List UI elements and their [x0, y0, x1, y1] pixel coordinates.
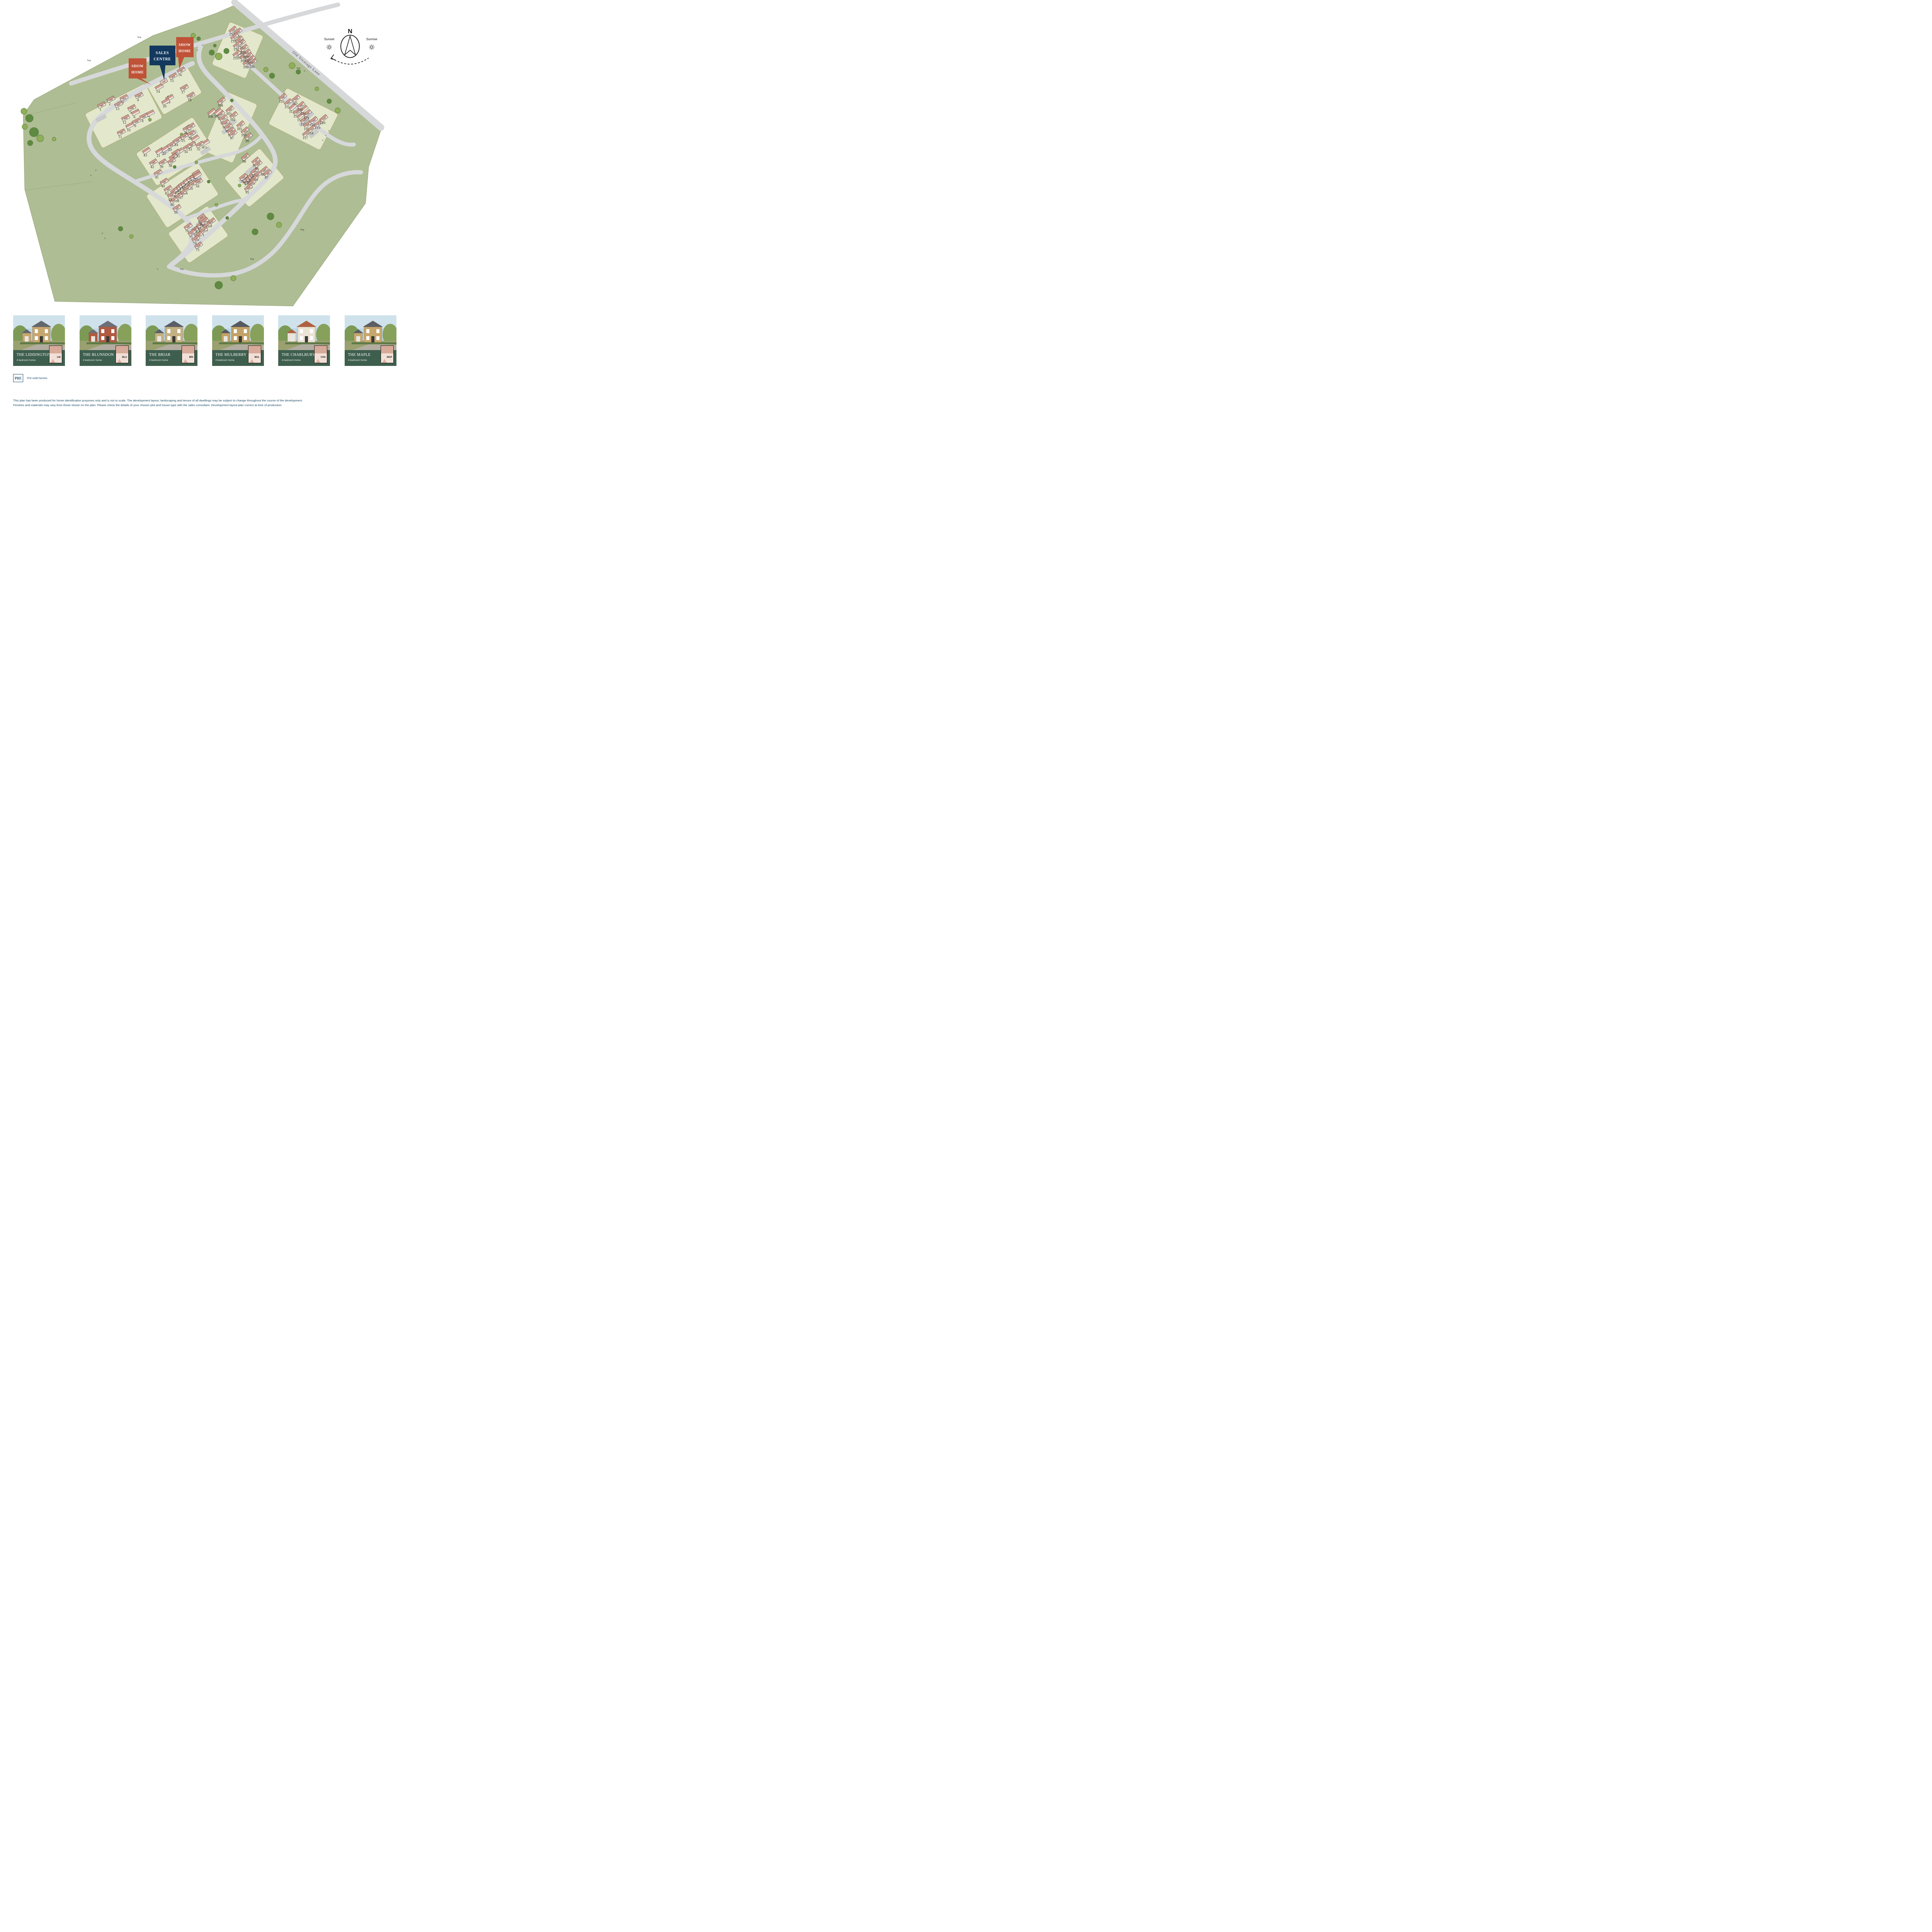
- plot-number: 118: [308, 132, 313, 136]
- plot-number: 20: [163, 105, 167, 109]
- plot-number: 60: [170, 203, 174, 207]
- svg-text:HOME: HOME: [179, 49, 191, 53]
- plot-number: 24: [174, 143, 178, 147]
- house-photo: [212, 315, 264, 350]
- plot-number: 101: [237, 128, 243, 131]
- plot-number: 6: [134, 116, 136, 119]
- plot-number: 34: [184, 150, 188, 154]
- house-type-card-maple[interactable]: THE MAPLE 4 bedroom home MAP: [345, 315, 396, 366]
- visitor-parking-label: V: [90, 175, 92, 177]
- plot-number: 13: [116, 107, 119, 111]
- plot-number: 74: [193, 242, 197, 246]
- plot-number: 59: [174, 211, 178, 215]
- plot-number: 21: [156, 154, 160, 158]
- plot-number: 12: [122, 121, 126, 125]
- plot-number: 43: [143, 154, 147, 158]
- plot-number: 73: [196, 248, 199, 252]
- svg-text:HOME: HOME: [131, 71, 144, 75]
- visitor-parking-label: V: [95, 170, 97, 172]
- plot-number: 99: [245, 139, 249, 143]
- svg-text:CENTRE: CENTRE: [154, 57, 171, 61]
- visitor-parking-label: V: [197, 49, 199, 52]
- visitor-parking-label: V: [325, 135, 327, 137]
- plot-number: 110: [279, 100, 284, 104]
- sun-path-arrow-icon: [331, 54, 335, 60]
- visitor-parking-label: V: [157, 269, 159, 271]
- visitor-parking-label: V: [328, 130, 330, 133]
- disclaimer-line-2: Finishes and materials may vary from tho…: [13, 403, 406, 408]
- house-photo: [278, 315, 330, 350]
- plot-number: 9: [134, 124, 136, 128]
- plot-number: 4: [137, 99, 139, 102]
- visitor-parking-label: V: [322, 139, 324, 142]
- house-type-cards: THE LIDDINGTON 4 bedroom home LID THE BL…: [13, 315, 396, 366]
- plot-number: 41: [155, 176, 159, 180]
- plot-number: 120: [320, 121, 326, 125]
- visitor-parking-label: V: [202, 44, 204, 47]
- house-type-card-liddington[interactable]: THE LIDDINGTON 4 bedroom home LID: [13, 315, 65, 366]
- house-photo: [345, 315, 396, 350]
- plot-number: 103: [226, 112, 232, 116]
- development-site-plan-page: BRI1PRE2MUL3MAP4PRE567PRE8PRE910BRI11PRE…: [0, 0, 419, 419]
- floorplan-icon: CHA: [314, 345, 327, 363]
- plot-number: 105: [214, 115, 220, 119]
- house-type-card-charlbury[interactable]: THE CHARLBURY 4 bedroom home CHA: [278, 315, 330, 366]
- plot-number: 18: [188, 99, 192, 102]
- plot-number: 125: [292, 102, 298, 105]
- plot-number: 129: [243, 56, 249, 60]
- svg-text:N: N: [348, 28, 352, 35]
- plot-number: 100: [241, 134, 247, 138]
- plot-number: 42: [150, 165, 154, 169]
- plot-number: 10: [127, 129, 131, 133]
- plot-number: 109: [243, 66, 249, 70]
- plot-number: 30/31: [201, 146, 207, 149]
- house-photo: [13, 315, 65, 350]
- plot-number: 23: [168, 148, 172, 152]
- disclaimer-text: This plan has been produced for home ide…: [13, 398, 406, 408]
- plot-number: 16: [178, 73, 182, 77]
- plot-number: 123: [300, 112, 306, 116]
- plot-number: 111: [284, 105, 290, 109]
- plot-number: 122: [304, 116, 310, 120]
- sunrise-sun-icon: [369, 44, 374, 50]
- plot-number: 40: [161, 185, 165, 189]
- plot-number: 91: [245, 191, 249, 195]
- plot-number: 128: [245, 59, 251, 63]
- plot-number: 117: [303, 136, 308, 140]
- pre-legend-label: Pre-sold homes: [27, 376, 48, 380]
- bcp-label: bcp: [180, 268, 184, 270]
- plot-number: 7: [148, 116, 150, 120]
- pre-code-box: PRE: [13, 374, 23, 382]
- compass: N Sunset Sunrise: [324, 28, 378, 64]
- plot-number: 119: [315, 126, 320, 130]
- pre-sold-legend: PRE Pre-sold homes: [13, 374, 48, 382]
- plot-number: 17: [181, 91, 185, 95]
- house-type-card-mulberry[interactable]: THE MULBERRY 4 bedroom home MUL: [212, 315, 264, 366]
- plot-number: 79: [240, 180, 244, 184]
- house-photo: [146, 315, 197, 350]
- plot-number: 8: [142, 119, 144, 123]
- plot-number: 14: [156, 90, 160, 94]
- plot-number: 25: [181, 139, 185, 143]
- plot-number: 102: [230, 118, 236, 122]
- plot-number: 2: [109, 102, 111, 106]
- plot-number: 54: [196, 185, 199, 189]
- plot-number: 76: [185, 230, 189, 233]
- floorplan-icon: LID: [49, 345, 62, 363]
- disclaimer-line-1: This plan has been produced for home ide…: [13, 398, 406, 403]
- bcp-label: bcp: [87, 59, 91, 62]
- house-type-card-blunsdon[interactable]: THE BLUNSDON 4 bedroom home BLU: [80, 315, 131, 366]
- floorplan-icon: MAP: [381, 345, 394, 363]
- svg-text:SHOW: SHOW: [131, 65, 144, 68]
- plot-number: 22: [162, 152, 166, 156]
- svg-text:SHOW: SHOW: [179, 43, 191, 47]
- bcp-label: bcp: [250, 258, 254, 260]
- house-photo: [80, 315, 131, 350]
- sunset-sun-icon: [327, 44, 332, 50]
- bcp-label: bcp: [297, 67, 300, 70]
- floorplan-icon: MUL: [248, 345, 261, 363]
- plot-number: 87: [265, 176, 269, 180]
- site-map: BRI1PRE2MUL3MAP4PRE567PRE8PRE910BRI11PRE…: [0, 0, 419, 309]
- plot-number: 130: [240, 51, 246, 55]
- plot-number: 106: [208, 115, 214, 119]
- plot-number: 11: [118, 135, 122, 139]
- plot-number: 33: [188, 148, 192, 152]
- plot-number: 61: [168, 198, 172, 202]
- plot-number: 5: [130, 111, 132, 115]
- plot-number: 135: [231, 40, 236, 44]
- visitor-parking-label: V: [104, 238, 106, 240]
- svg-text:Sunset: Sunset: [324, 37, 335, 41]
- plot-number: 104: [218, 104, 223, 108]
- bcp-label: bcp: [138, 36, 141, 39]
- floorplan-icon: BLU: [116, 345, 129, 363]
- visitor-parking-label: V: [102, 233, 104, 235]
- plot-number: 121: [310, 123, 316, 127]
- bcp-label: bcp: [301, 228, 304, 231]
- plot-number: 32: [197, 148, 201, 151]
- plot-number: 15: [170, 79, 174, 83]
- floorplan-icon: BRI: [182, 345, 195, 363]
- plot-number: 98: [242, 160, 246, 164]
- plot-number: 126: [249, 65, 255, 69]
- visitor-parking-label: V: [304, 70, 306, 73]
- plot-number: 39: [160, 165, 163, 169]
- svg-text:Sunrise: Sunrise: [366, 37, 378, 41]
- plot-number: 85: [255, 167, 259, 171]
- plot-number: 75: [189, 236, 193, 240]
- plot-number: 1: [100, 108, 102, 112]
- plot-number: 62: [165, 192, 169, 196]
- plot-number: 97: [230, 137, 234, 141]
- svg-text:SALES: SALES: [156, 51, 169, 55]
- plot-number: 124: [297, 108, 303, 112]
- house-type-card-briar[interactable]: THE BRIAR 4 bedroom home BRI: [146, 315, 197, 366]
- plot-number: 38: [168, 164, 172, 168]
- plot-number: 137: [233, 57, 239, 61]
